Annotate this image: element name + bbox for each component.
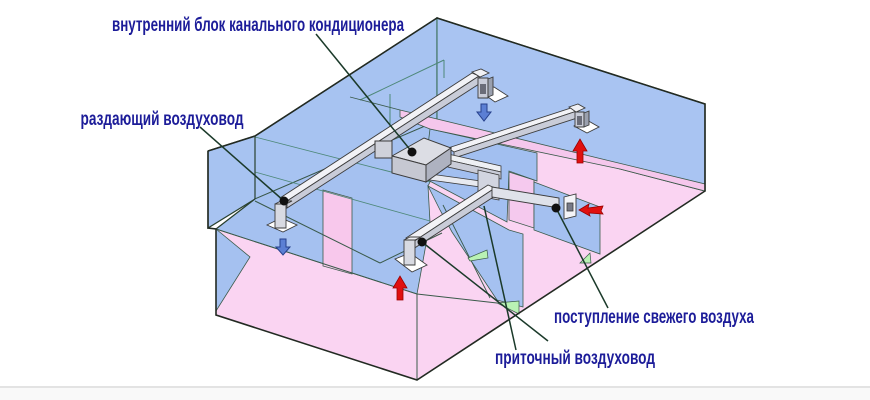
svg-text:приточный воздуховод: приточный воздуховод — [495, 348, 655, 369]
svg-text:поступление свежего воздуха: поступление свежего воздуха — [554, 307, 754, 328]
svg-text:внутренний блок канального кон: внутренний блок канального кондиционера — [112, 15, 404, 36]
svg-text:раздающий воздуховод: раздающий воздуховод — [81, 109, 244, 130]
